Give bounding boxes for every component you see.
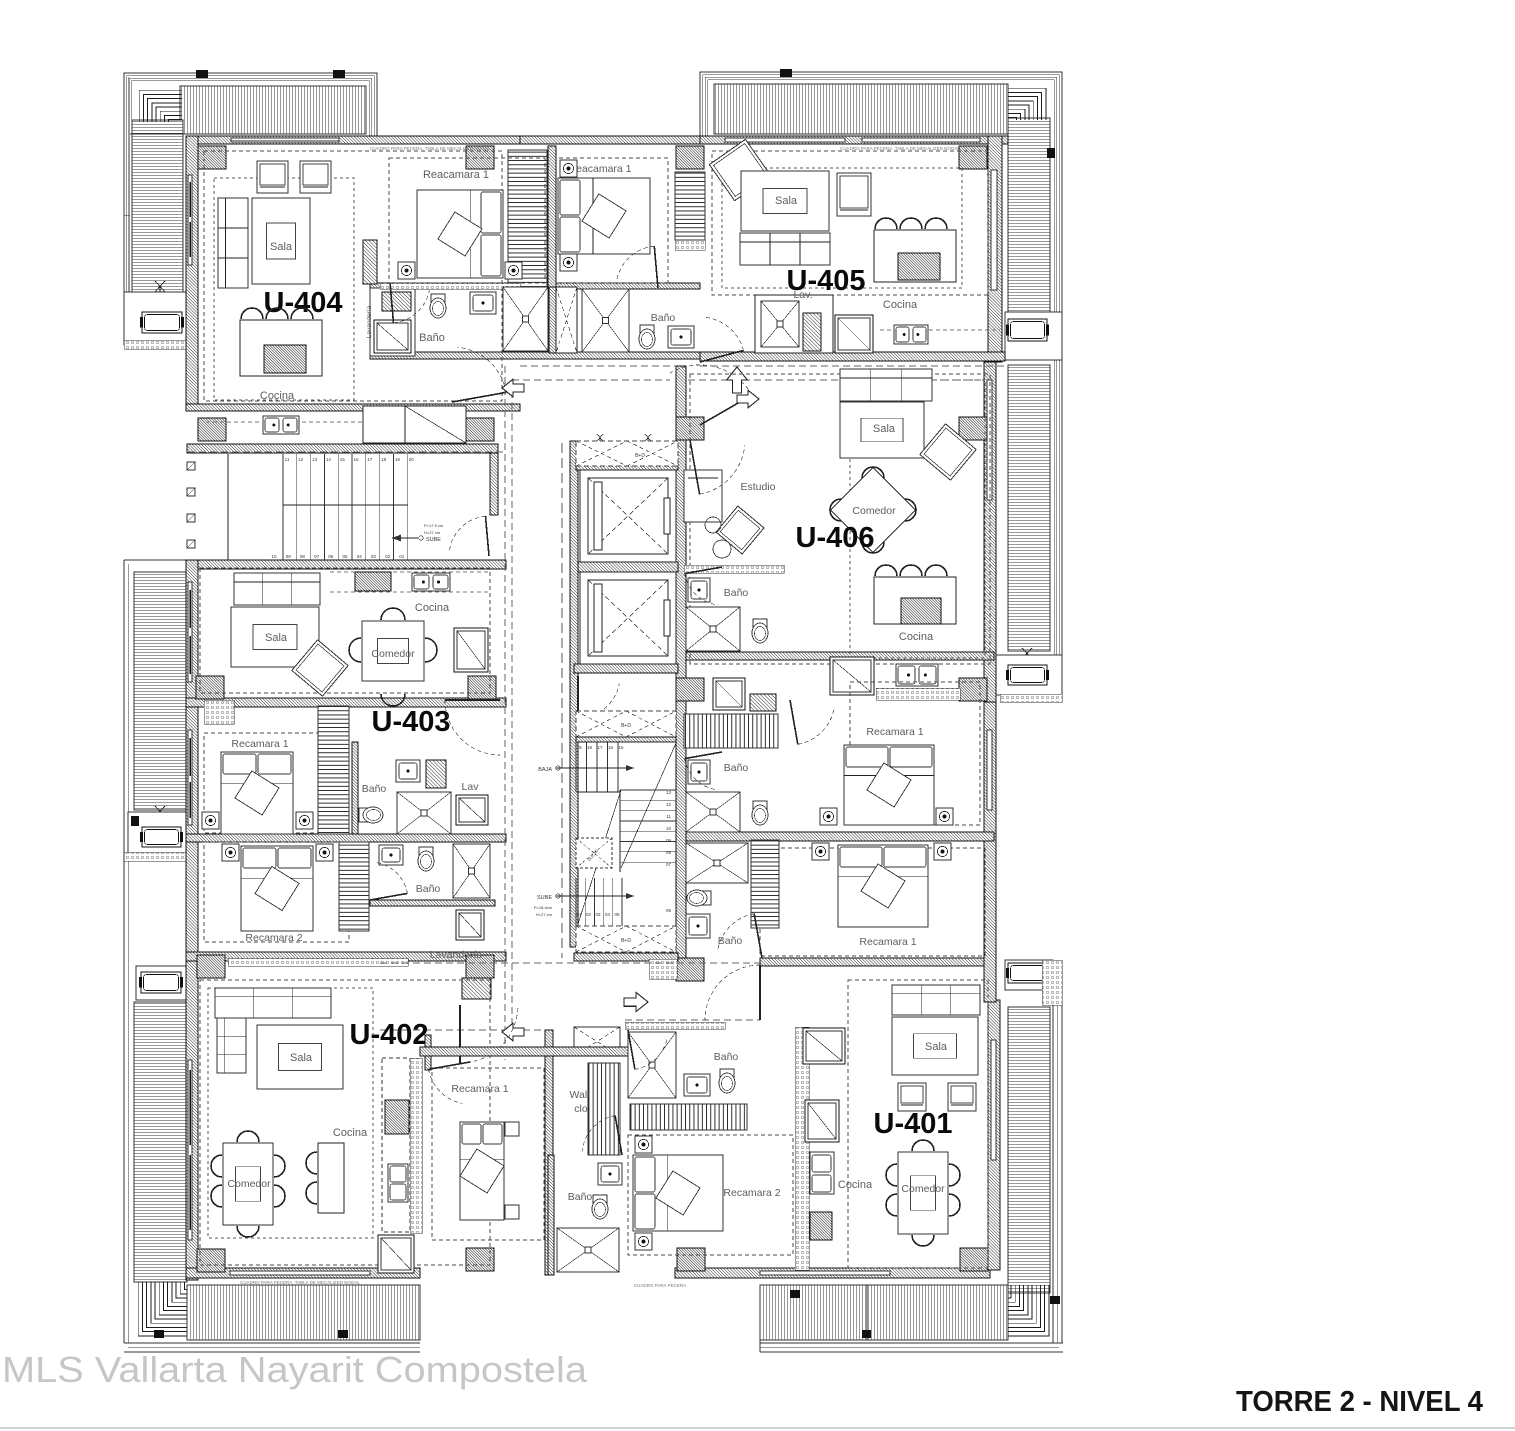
svg-text:CUADRO PARA PECERA. TABLA DE M: CUADRO PARA PECERA. TABLA DE MECALIZED N… <box>840 146 960 151</box>
svg-text:10: 10 <box>666 826 672 831</box>
svg-text:BAJA: BAJA <box>538 767 552 773</box>
svg-text:Baño: Baño <box>419 332 445 344</box>
svg-text:Baño: Baño <box>718 935 743 947</box>
svg-text:03: 03 <box>371 554 377 559</box>
svg-text:19: 19 <box>576 745 582 750</box>
svg-text:15: 15 <box>618 745 624 750</box>
svg-text:Cocina: Cocina <box>260 390 295 402</box>
svg-text:13: 13 <box>312 457 318 462</box>
svg-text:15: 15 <box>340 457 346 462</box>
svg-text:Lavandería: Lavandería <box>430 949 483 961</box>
svg-text:16: 16 <box>608 745 614 750</box>
svg-text:04: 04 <box>357 554 363 559</box>
svg-text:12: 12 <box>666 802 672 807</box>
svg-text:Lavandería: Lavandería <box>366 305 373 338</box>
svg-text:Reacamara 1: Reacamara 1 <box>423 169 489 181</box>
svg-text:05: 05 <box>614 912 620 917</box>
svg-text:U-402: U-402 <box>350 1019 429 1051</box>
svg-text:B+D: B+D <box>621 723 631 729</box>
svg-text:Cocina: Cocina <box>333 1127 368 1139</box>
svg-text:P=18.4cm: P=18.4cm <box>534 905 553 910</box>
svg-text:01: 01 <box>399 554 405 559</box>
svg-text:17: 17 <box>597 745 603 750</box>
svg-text:06: 06 <box>666 908 672 913</box>
svg-text:Cocina: Cocina <box>415 602 450 614</box>
svg-text:U-401: U-401 <box>874 1108 953 1140</box>
svg-text:Baño: Baño <box>362 783 387 795</box>
svg-text:Sala: Sala <box>775 195 798 207</box>
svg-text:H=27 cm: H=27 cm <box>536 912 553 917</box>
svg-text:SUBE: SUBE <box>426 537 441 543</box>
svg-text:13: 13 <box>666 790 672 795</box>
svg-text:Sala: Sala <box>925 1041 948 1053</box>
svg-text:08: 08 <box>300 554 306 559</box>
svg-text:18: 18 <box>381 457 387 462</box>
svg-text:MLS Vallarta Nayarit Compostel: MLS Vallarta Nayarit Compostela <box>2 1349 588 1390</box>
svg-text:Recamara 1: Recamara 1 <box>451 1083 508 1095</box>
svg-text:08: 08 <box>666 850 672 855</box>
svg-text:Cocina: Cocina <box>883 299 918 311</box>
svg-text:Recamara 1: Recamara 1 <box>866 726 923 738</box>
svg-text:Sala: Sala <box>265 632 288 644</box>
svg-text:10: 10 <box>271 554 277 559</box>
svg-text:07: 07 <box>314 554 320 559</box>
svg-text:07: 07 <box>666 862 672 867</box>
svg-text:12: 12 <box>298 457 304 462</box>
svg-text:Cocina: Cocina <box>838 1179 873 1191</box>
svg-text:Recamara 2: Recamara 2 <box>245 932 302 944</box>
svg-text:P=17.5 cm: P=17.5 cm <box>424 523 444 528</box>
svg-text:TORRE 2 - NIVEL 4: TORRE 2 - NIVEL 4 <box>1236 1386 1483 1418</box>
svg-text:14: 14 <box>326 457 332 462</box>
svg-text:Lav: Lav <box>462 781 480 793</box>
svg-text:18: 18 <box>587 745 593 750</box>
svg-text:Baño: Baño <box>651 312 676 324</box>
svg-text:Comedor: Comedor <box>901 1183 945 1195</box>
svg-text:Baño: Baño <box>416 883 441 895</box>
svg-text:Lav.: Lav. <box>793 289 812 301</box>
svg-text:CUADRO PARA PECERA. TABLA DE M: CUADRO PARA PECERA. TABLA DE MECALIZED N… <box>370 146 490 151</box>
svg-text:U-404: U-404 <box>264 287 343 319</box>
svg-text:09: 09 <box>666 838 672 843</box>
svg-text:CUADRO PARA PECERA: CUADRO PARA PECERA <box>634 1283 686 1288</box>
svg-text:02: 02 <box>385 554 391 559</box>
svg-text:Recamara 1: Recamara 1 <box>859 936 916 948</box>
svg-text:02: 02 <box>586 912 592 917</box>
svg-text:CUADRO PARA PECERA. TABLA DE M: CUADRO PARA PECERA. TABLA DE MECALIZED N… <box>240 1280 360 1285</box>
svg-text:Baño: Baño <box>724 587 749 599</box>
svg-text:19: 19 <box>395 457 401 462</box>
svg-text:Estudio: Estudio <box>740 481 775 493</box>
svg-text:Recamara 2: Recamara 2 <box>723 1187 780 1199</box>
svg-text:U-406: U-406 <box>796 522 875 554</box>
svg-text:Baño: Baño <box>724 762 749 774</box>
svg-text:17: 17 <box>367 457 373 462</box>
svg-text:Baño: Baño <box>568 1191 593 1203</box>
svg-text:U-403: U-403 <box>372 706 451 738</box>
svg-text:Comedor: Comedor <box>227 1178 271 1190</box>
svg-text:Baño: Baño <box>714 1051 739 1063</box>
svg-text:Reacamara 1: Reacamara 1 <box>568 163 631 175</box>
svg-text:03: 03 <box>595 912 601 917</box>
svg-text:Recamara 1: Recamara 1 <box>231 738 288 750</box>
svg-text:11: 11 <box>666 814 671 819</box>
svg-text:Comedor: Comedor <box>371 648 415 660</box>
svg-text:Sala: Sala <box>290 1052 313 1064</box>
svg-text:Sala: Sala <box>270 241 293 253</box>
svg-text:06: 06 <box>328 554 334 559</box>
svg-text:11: 11 <box>285 457 290 462</box>
svg-text:16: 16 <box>353 457 359 462</box>
svg-text:B+D: B+D <box>621 938 631 944</box>
svg-text:Sala: Sala <box>873 423 896 435</box>
svg-text:01: 01 <box>576 912 582 917</box>
svg-text:04: 04 <box>605 912 611 917</box>
svg-text:H=27 cm: H=27 cm <box>424 530 441 535</box>
svg-text:20: 20 <box>409 457 415 462</box>
svg-text:B+D: B+D <box>635 453 645 459</box>
svg-text:Cocina: Cocina <box>899 631 934 643</box>
svg-text:SUBE: SUBE <box>537 895 552 901</box>
svg-text:05: 05 <box>342 554 348 559</box>
svg-text:09: 09 <box>286 554 292 559</box>
svg-text:Comedor: Comedor <box>852 505 896 517</box>
